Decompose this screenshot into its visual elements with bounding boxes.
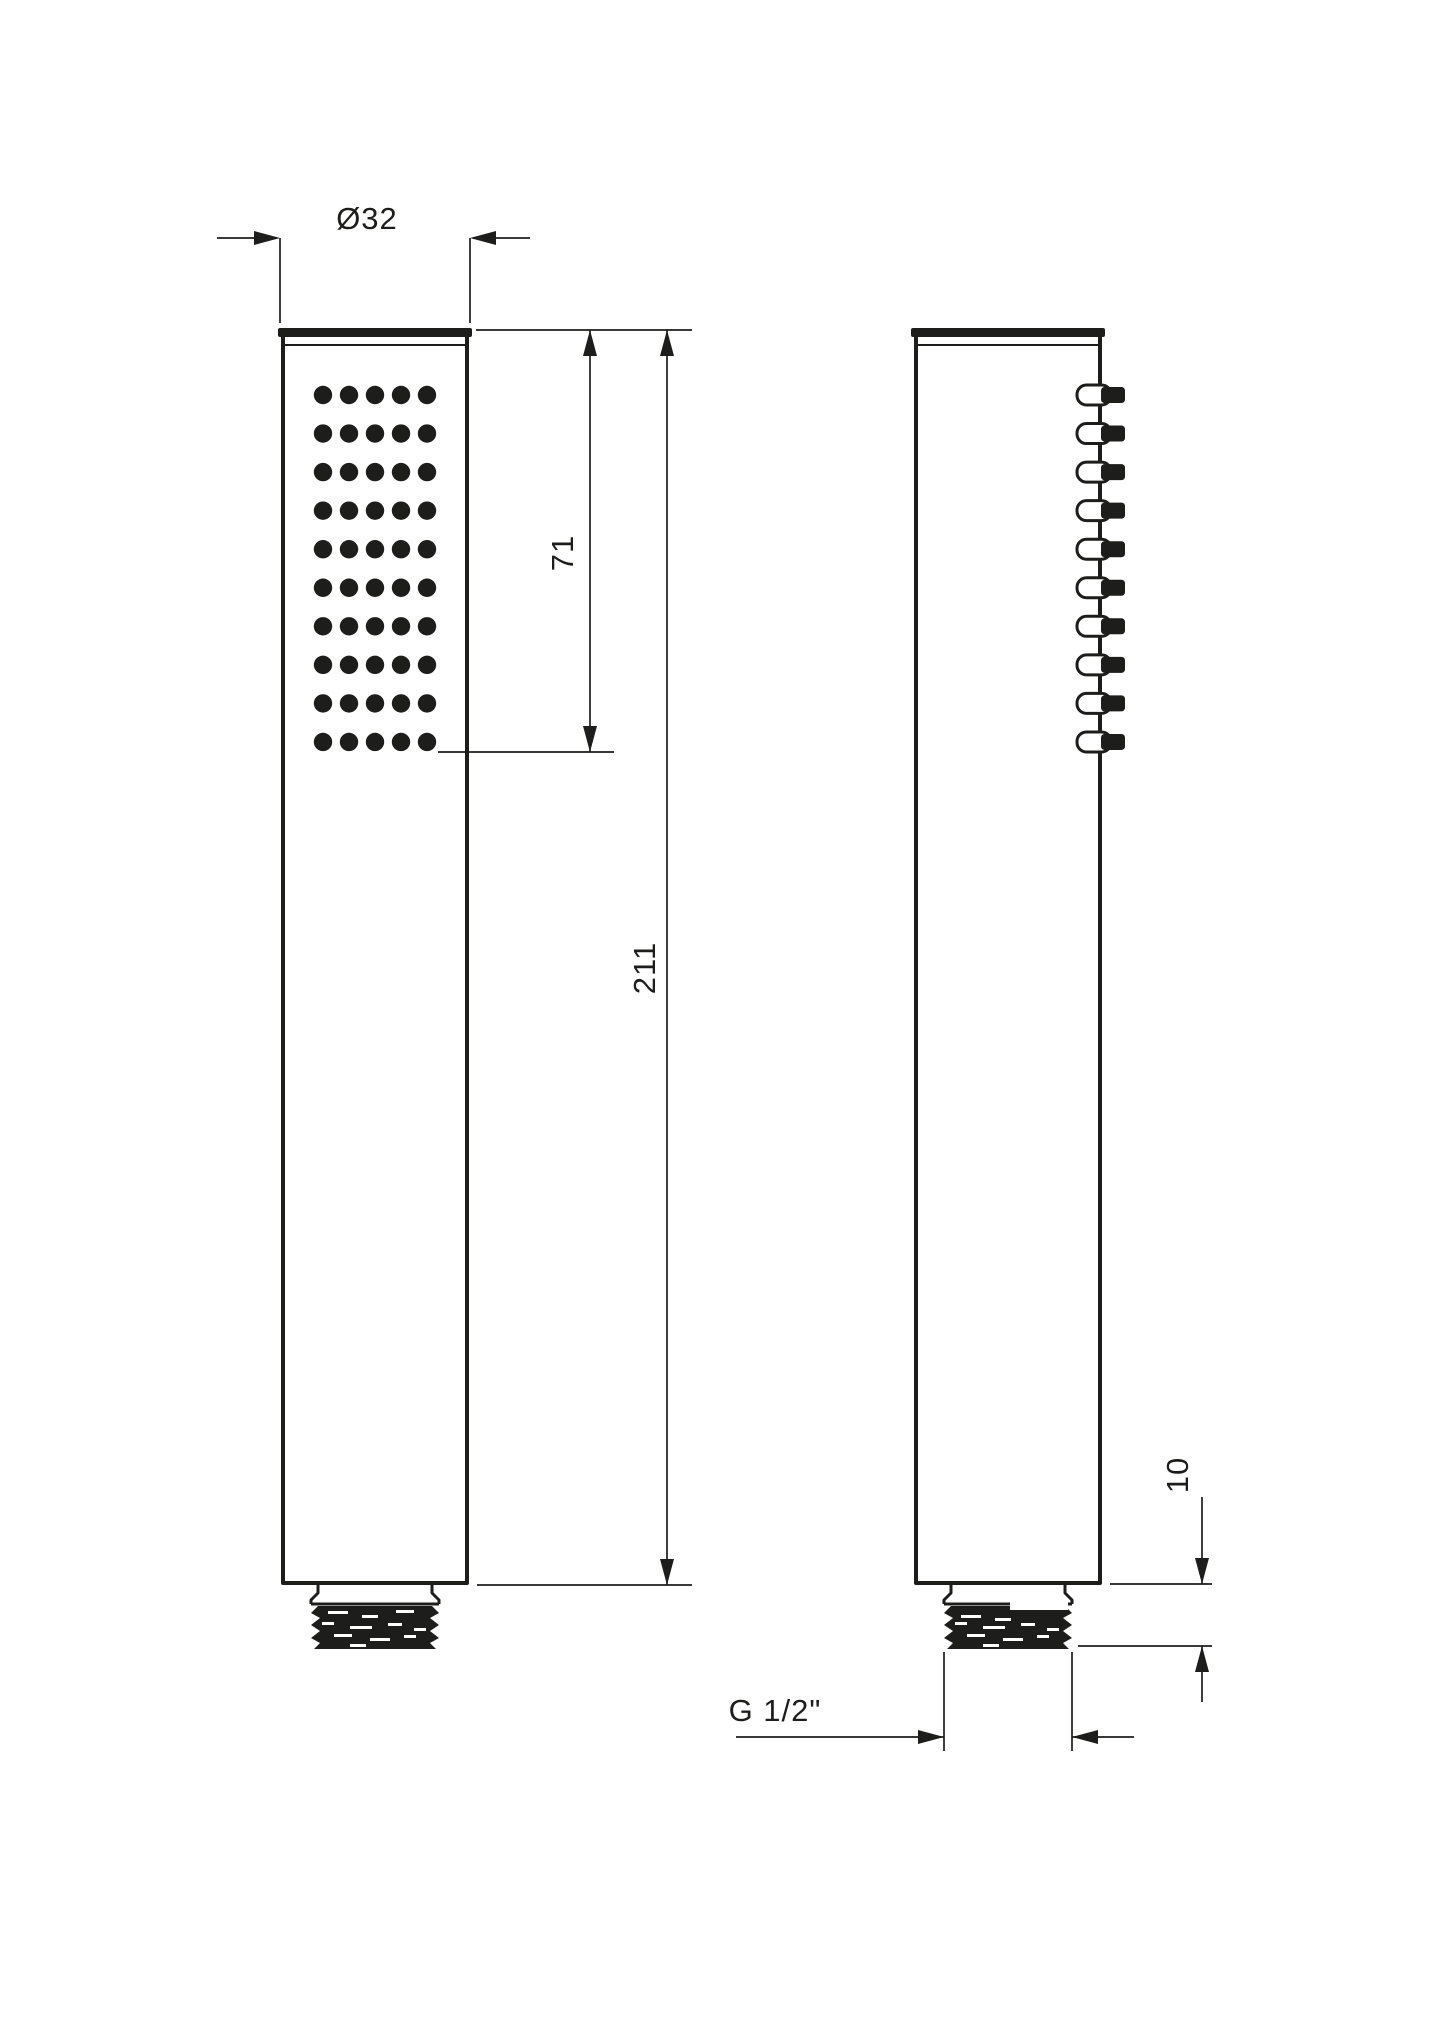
nozzle-dot [340, 386, 358, 404]
side-nozzle-cap [1101, 541, 1125, 557]
nozzle-dot [314, 656, 332, 674]
thread-spec-label: G 1/2" [729, 1693, 822, 1728]
dim-arrow-left-icon [1072, 1730, 1098, 1744]
dim-arrow-right-icon [254, 231, 280, 245]
dim-arrow-up-icon [583, 330, 597, 356]
nozzle-dot [418, 386, 436, 404]
nozzle-dot [340, 656, 358, 674]
nozzle-dot [340, 579, 358, 597]
nozzle-dot [366, 501, 384, 519]
face-length-label: 71 [545, 535, 580, 571]
nozzle-dot [392, 656, 410, 674]
nozzle-dot [392, 501, 410, 519]
dim-arrow-up-icon [1195, 1646, 1209, 1672]
nozzle-dot [340, 501, 358, 519]
nozzle-dot [418, 733, 436, 751]
nozzle-dot [314, 424, 332, 442]
nozzle-dot [314, 733, 332, 751]
diameter-label: Ø32 [336, 201, 398, 236]
nozzle-dot [392, 386, 410, 404]
side-nozzle [1077, 424, 1125, 444]
side-nozzle-cap [1101, 503, 1125, 519]
nozzle-dot [340, 540, 358, 558]
nozzle-dot [314, 579, 332, 597]
nozzle-dot [366, 733, 384, 751]
nozzle-dot [340, 463, 358, 481]
dim-arrow-right-icon [918, 1730, 944, 1744]
nozzle-dot [366, 540, 384, 558]
side-nozzle [1077, 616, 1125, 636]
nozzle-dot [314, 540, 332, 558]
total-length-label: 211 [627, 942, 662, 994]
nozzle-dot [314, 463, 332, 481]
nozzle-dot [418, 694, 436, 712]
side-thread [944, 1606, 1072, 1649]
side-nozzle [1077, 501, 1125, 521]
front-thread-connector [311, 1585, 439, 1649]
side-thread-connector [944, 1585, 1072, 1649]
nozzle-dot [392, 540, 410, 558]
nozzle-dot [366, 656, 384, 674]
side-body [916, 331, 1100, 1583]
side-nozzle-cap [1101, 695, 1125, 711]
front-top-cap [278, 328, 472, 337]
side-nozzle-cap [1101, 387, 1125, 403]
nozzle-dot [366, 617, 384, 635]
nozzle-dot [392, 463, 410, 481]
front-view [278, 328, 472, 1649]
nozzle-dot [418, 579, 436, 597]
dim-arrow-down-icon [583, 726, 597, 752]
nozzle-dot [418, 463, 436, 481]
side-nozzle-cap [1101, 657, 1125, 673]
nozzle-dot [392, 424, 410, 442]
nozzle-dot [418, 501, 436, 519]
dim-arrow-up-icon [660, 330, 674, 356]
nozzle-dot [366, 694, 384, 712]
side-view [911, 328, 1125, 1649]
nozzle-dot [314, 617, 332, 635]
nozzle-dot [392, 694, 410, 712]
nozzle-dot [340, 733, 358, 751]
nozzle-dot [366, 579, 384, 597]
nozzle-dot [418, 617, 436, 635]
side-nozzle-cap [1101, 618, 1125, 634]
nozzle-dot [314, 386, 332, 404]
side-nozzle [1077, 462, 1125, 482]
nozzle-dot [340, 617, 358, 635]
technical-drawing: Ø32 71 211 10 G 1/2" [0, 0, 1445, 2043]
side-nozzle [1077, 539, 1125, 559]
side-top-cap [911, 328, 1105, 337]
nozzle-dot [314, 694, 332, 712]
side-nozzle-cap [1101, 426, 1125, 442]
side-nozzle [1077, 655, 1125, 675]
nozzle-dot [314, 501, 332, 519]
side-nozzle [1077, 385, 1125, 405]
nozzle-dot [418, 424, 436, 442]
front-connector-neck [311, 1585, 439, 1604]
nozzle-dot [392, 617, 410, 635]
nozzle-dot [366, 424, 384, 442]
nozzle-dot [392, 733, 410, 751]
dim-arrow-left-icon [470, 231, 496, 245]
nozzle-dot [418, 540, 436, 558]
dimension-thread-spec: G 1/2" [729, 1652, 1134, 1751]
side-nozzle-cap [1101, 464, 1125, 480]
dim-arrow-down-icon [660, 1559, 674, 1585]
dimension-face-length: 71 [438, 330, 692, 752]
side-thread-notch [1010, 1601, 1068, 1610]
side-nozzle [1077, 693, 1125, 713]
nozzle-dot [366, 386, 384, 404]
side-nozzle-cap [1101, 734, 1125, 750]
nozzle-dot [340, 694, 358, 712]
side-nozzle [1077, 578, 1125, 598]
side-nozzle-cap [1101, 580, 1125, 596]
nozzle-dot [418, 656, 436, 674]
nozzle-dot [392, 579, 410, 597]
nozzle-dot [340, 424, 358, 442]
thread-length-label: 10 [1160, 1457, 1195, 1493]
side-nozzle [1077, 732, 1125, 752]
dimension-total-length: 211 [477, 330, 692, 1585]
nozzle-dot [366, 463, 384, 481]
dimension-diameter: Ø32 [217, 201, 530, 323]
drawing-canvas: Ø32 71 211 10 G 1/2" [0, 0, 1445, 2043]
dim-arrow-down-icon [1195, 1558, 1209, 1584]
